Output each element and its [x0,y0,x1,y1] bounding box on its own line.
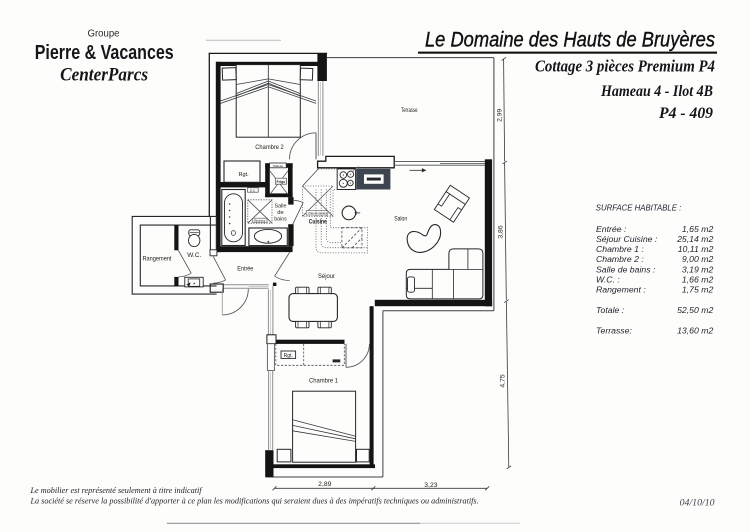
svg-text:Hameau 4 - Ilot 4B: Hameau 4 - Ilot 4B [600,83,713,100]
svg-text:Pierre & Vacances: Pierre & Vacances [35,41,174,64]
svg-text:Rgt.: Rgt. [238,172,249,178]
svg-text:Cuisine: Cuisine [309,218,327,225]
svg-text:Totale :: Totale : [596,305,625,315]
svg-text:Chambre 2 :: Chambre 2 : [596,254,644,264]
svg-text:Séjour: Séjour [318,273,336,280]
svg-text:La société se réserve la possi: La société se réserve la possibilité d'a… [30,497,479,506]
svg-text:13,60 m2: 13,60 m2 [677,326,713,336]
svg-text:Groupe: Groupe [88,29,120,40]
svg-text:3,23: 3,23 [424,482,437,489]
svg-text:de: de [277,210,284,216]
svg-text:52,50 m2: 52,50 m2 [677,305,713,315]
svg-text:Séjour Cuisine :: Séjour Cuisine : [596,234,658,244]
svg-text:Terrasse: Terrasse [401,108,418,114]
svg-text:2,99: 2,99 [496,108,503,121]
svg-text:Chambre 1: Chambre 1 [309,377,338,384]
svg-text:W.C.: W.C. [187,252,201,259]
svg-text:Tablette: Tablette [273,164,284,168]
svg-text:04/10/10: 04/10/10 [680,498,715,509]
svg-text:Salon: Salon [394,215,407,222]
svg-text:CenterParcs: CenterParcs [60,66,148,86]
svg-text:Frigo: Frigo [277,180,286,184]
svg-text:Salle de bains :: Salle de bains : [596,264,656,274]
svg-text:Chambre 1 :: Chambre 1 : [596,244,644,254]
svg-text:Rangement: Rangement [143,255,172,262]
svg-text:25,14 m2: 25,14 m2 [676,234,713,244]
svg-text:Rgt.: Rgt. [284,353,293,359]
svg-text:9,00 m2: 9,00 m2 [682,254,714,264]
svg-text:1,75 m2: 1,75 m2 [682,284,714,294]
svg-text:Chambre 2: Chambre 2 [255,144,284,151]
svg-text:Salle: Salle [275,204,287,210]
svg-text:1,66 m2: 1,66 m2 [682,274,714,284]
svg-text:Terrasse:: Terrasse: [596,326,632,336]
svg-text:Entrée: Entrée [237,265,253,272]
svg-text:Rangement :: Rangement : [596,284,646,294]
svg-text:Receveur: Receveur [254,218,266,222]
svg-text:Entrée :: Entrée : [596,224,627,234]
svg-text:Le mobilier est représenté seu: Le mobilier est représenté seulement à t… [30,486,204,495]
svg-text:Plan de travail: Plan de travail [308,211,325,215]
svg-text:Le Domaine des Hauts de Bruyèr: Le Domaine des Hauts de Bruyères [425,28,715,52]
svg-text:Cottage 3 pièces Premium P4: Cottage 3 pièces Premium P4 [535,57,715,76]
svg-text:4,75: 4,75 [499,374,506,387]
svg-text:10,11 m2: 10,11 m2 [678,244,714,254]
svg-text:1,65 m2: 1,65 m2 [682,224,714,234]
svg-text:W.C. :: W.C. : [596,274,620,284]
svg-text:3,86: 3,86 [497,225,504,238]
svg-text:E.S.: E.S. [250,188,256,192]
svg-text:bains: bains [274,217,287,223]
svg-text:2,89: 2,89 [318,481,331,488]
svg-text:SURFACE HABITABLE :: SURFACE HABITABLE : [596,203,682,213]
svg-text:3,19 m2: 3,19 m2 [682,264,714,274]
svg-text:P4 - 409: P4 - 409 [658,105,713,122]
